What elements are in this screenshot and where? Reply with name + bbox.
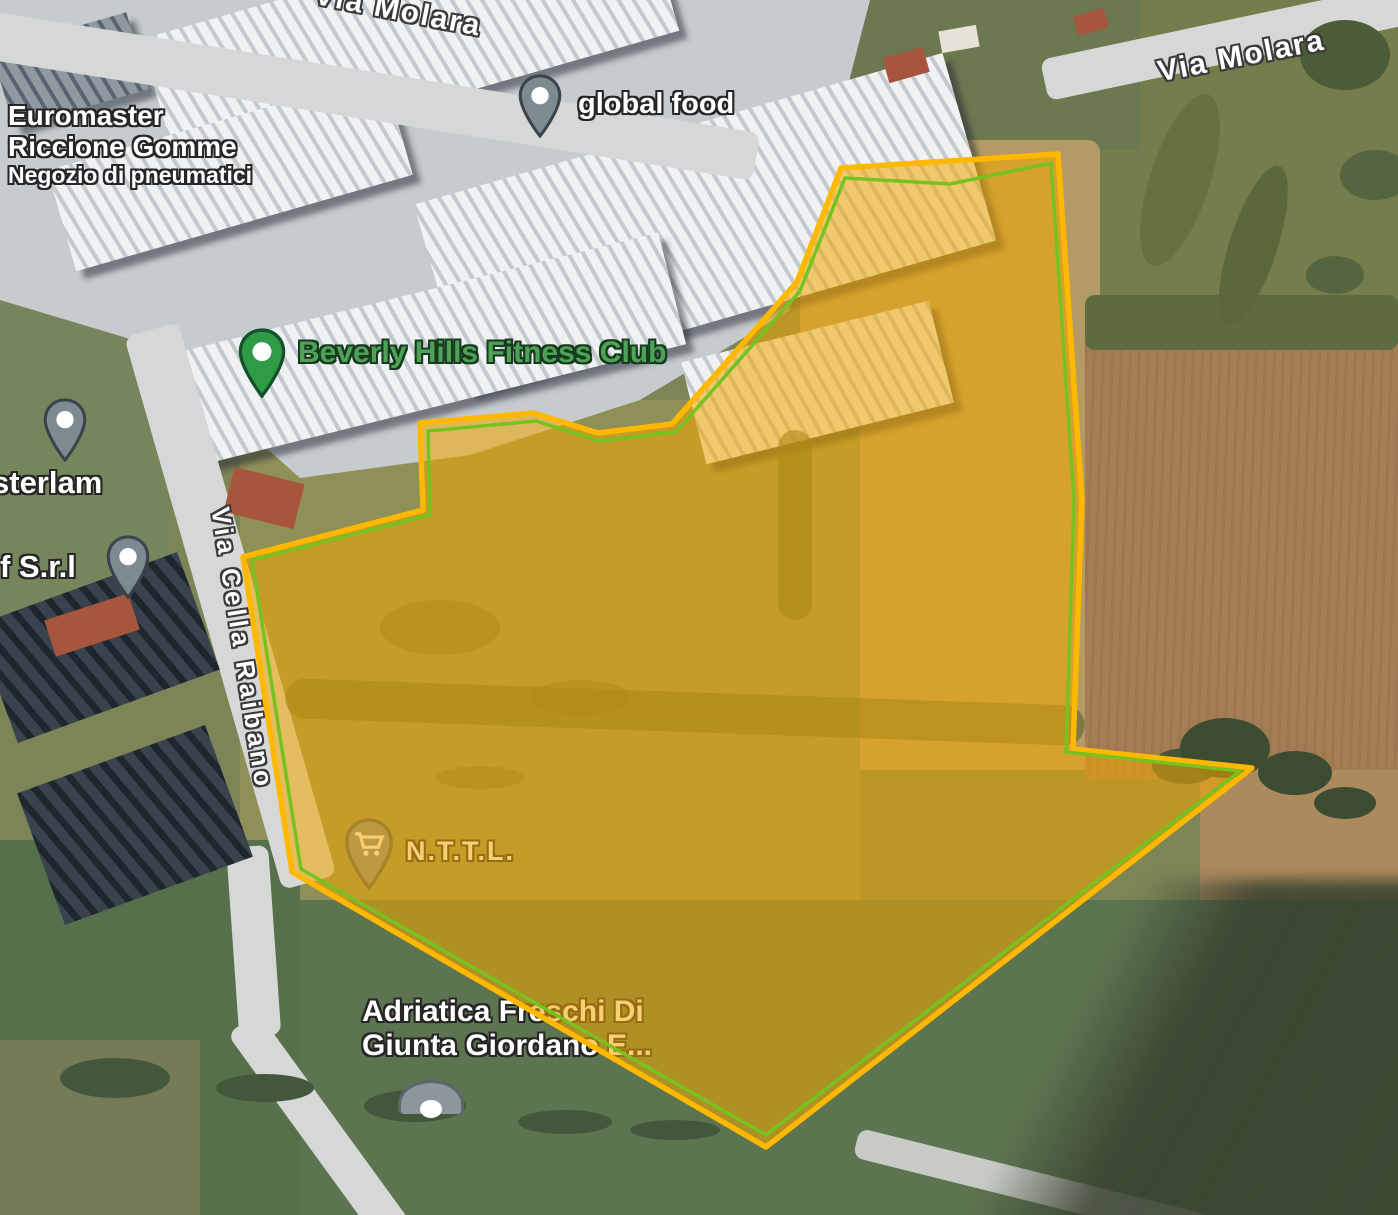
dot-marker-icon <box>253 342 272 361</box>
global-food-pin[interactable] <box>517 74 563 138</box>
poi-label-line: Euromaster <box>8 100 252 131</box>
poi-label-sterlam[interactable]: sterlam <box>0 466 102 501</box>
labels-layer: Via Molara Via Molara Via Cella Raibano … <box>0 0 1398 1215</box>
poi-label-nttl[interactable]: N.T.T.L. <box>406 836 515 866</box>
nttl-pin[interactable] <box>342 818 396 890</box>
road-label-via-molara-right: Via Molara <box>1155 24 1328 90</box>
pin-body <box>347 820 391 888</box>
dot-marker-icon <box>119 548 136 565</box>
poi-label-line: Riccione Gomme <box>8 131 252 162</box>
adriatica-pin-dome[interactable] <box>398 1080 464 1114</box>
dot-marker-icon <box>56 411 73 428</box>
road-label-via-molara-left: Via Molara <box>312 0 485 44</box>
poi-label-line: Adriatica Freschi Di <box>362 995 652 1029</box>
poi-label-adriatica[interactable]: Adriatica Freschi Di Giunta Giordano E..… <box>362 995 652 1062</box>
sterlam-pin[interactable] <box>42 398 88 462</box>
map-canvas: Via Molara Via Molara Via Cella Raibano … <box>0 0 1398 1215</box>
poi-label-euromaster[interactable]: Euromaster Riccione Gomme Negozio di pne… <box>8 100 252 188</box>
dot-marker-icon <box>420 1100 442 1118</box>
dot-marker-icon <box>531 87 548 104</box>
beverly-pin[interactable] <box>236 328 288 398</box>
poi-label-line: Giunta Giordano E... <box>362 1029 652 1063</box>
road-label-via-cella-raibano: Via Cella Raibano <box>204 505 279 792</box>
poi-label-line: Negozio di pneumatici <box>8 163 252 189</box>
pin-body <box>45 400 85 460</box>
poi-label-global-food[interactable]: global food <box>578 88 734 120</box>
fsrl-pin[interactable] <box>105 535 151 599</box>
pin-body <box>520 76 560 136</box>
pin-body <box>108 537 148 597</box>
pin-body <box>240 330 283 396</box>
poi-label-beverly[interactable]: Beverly Hills Fitness Club <box>298 336 666 370</box>
poi-label-fsrl[interactable]: f S.r.l <box>0 550 76 585</box>
